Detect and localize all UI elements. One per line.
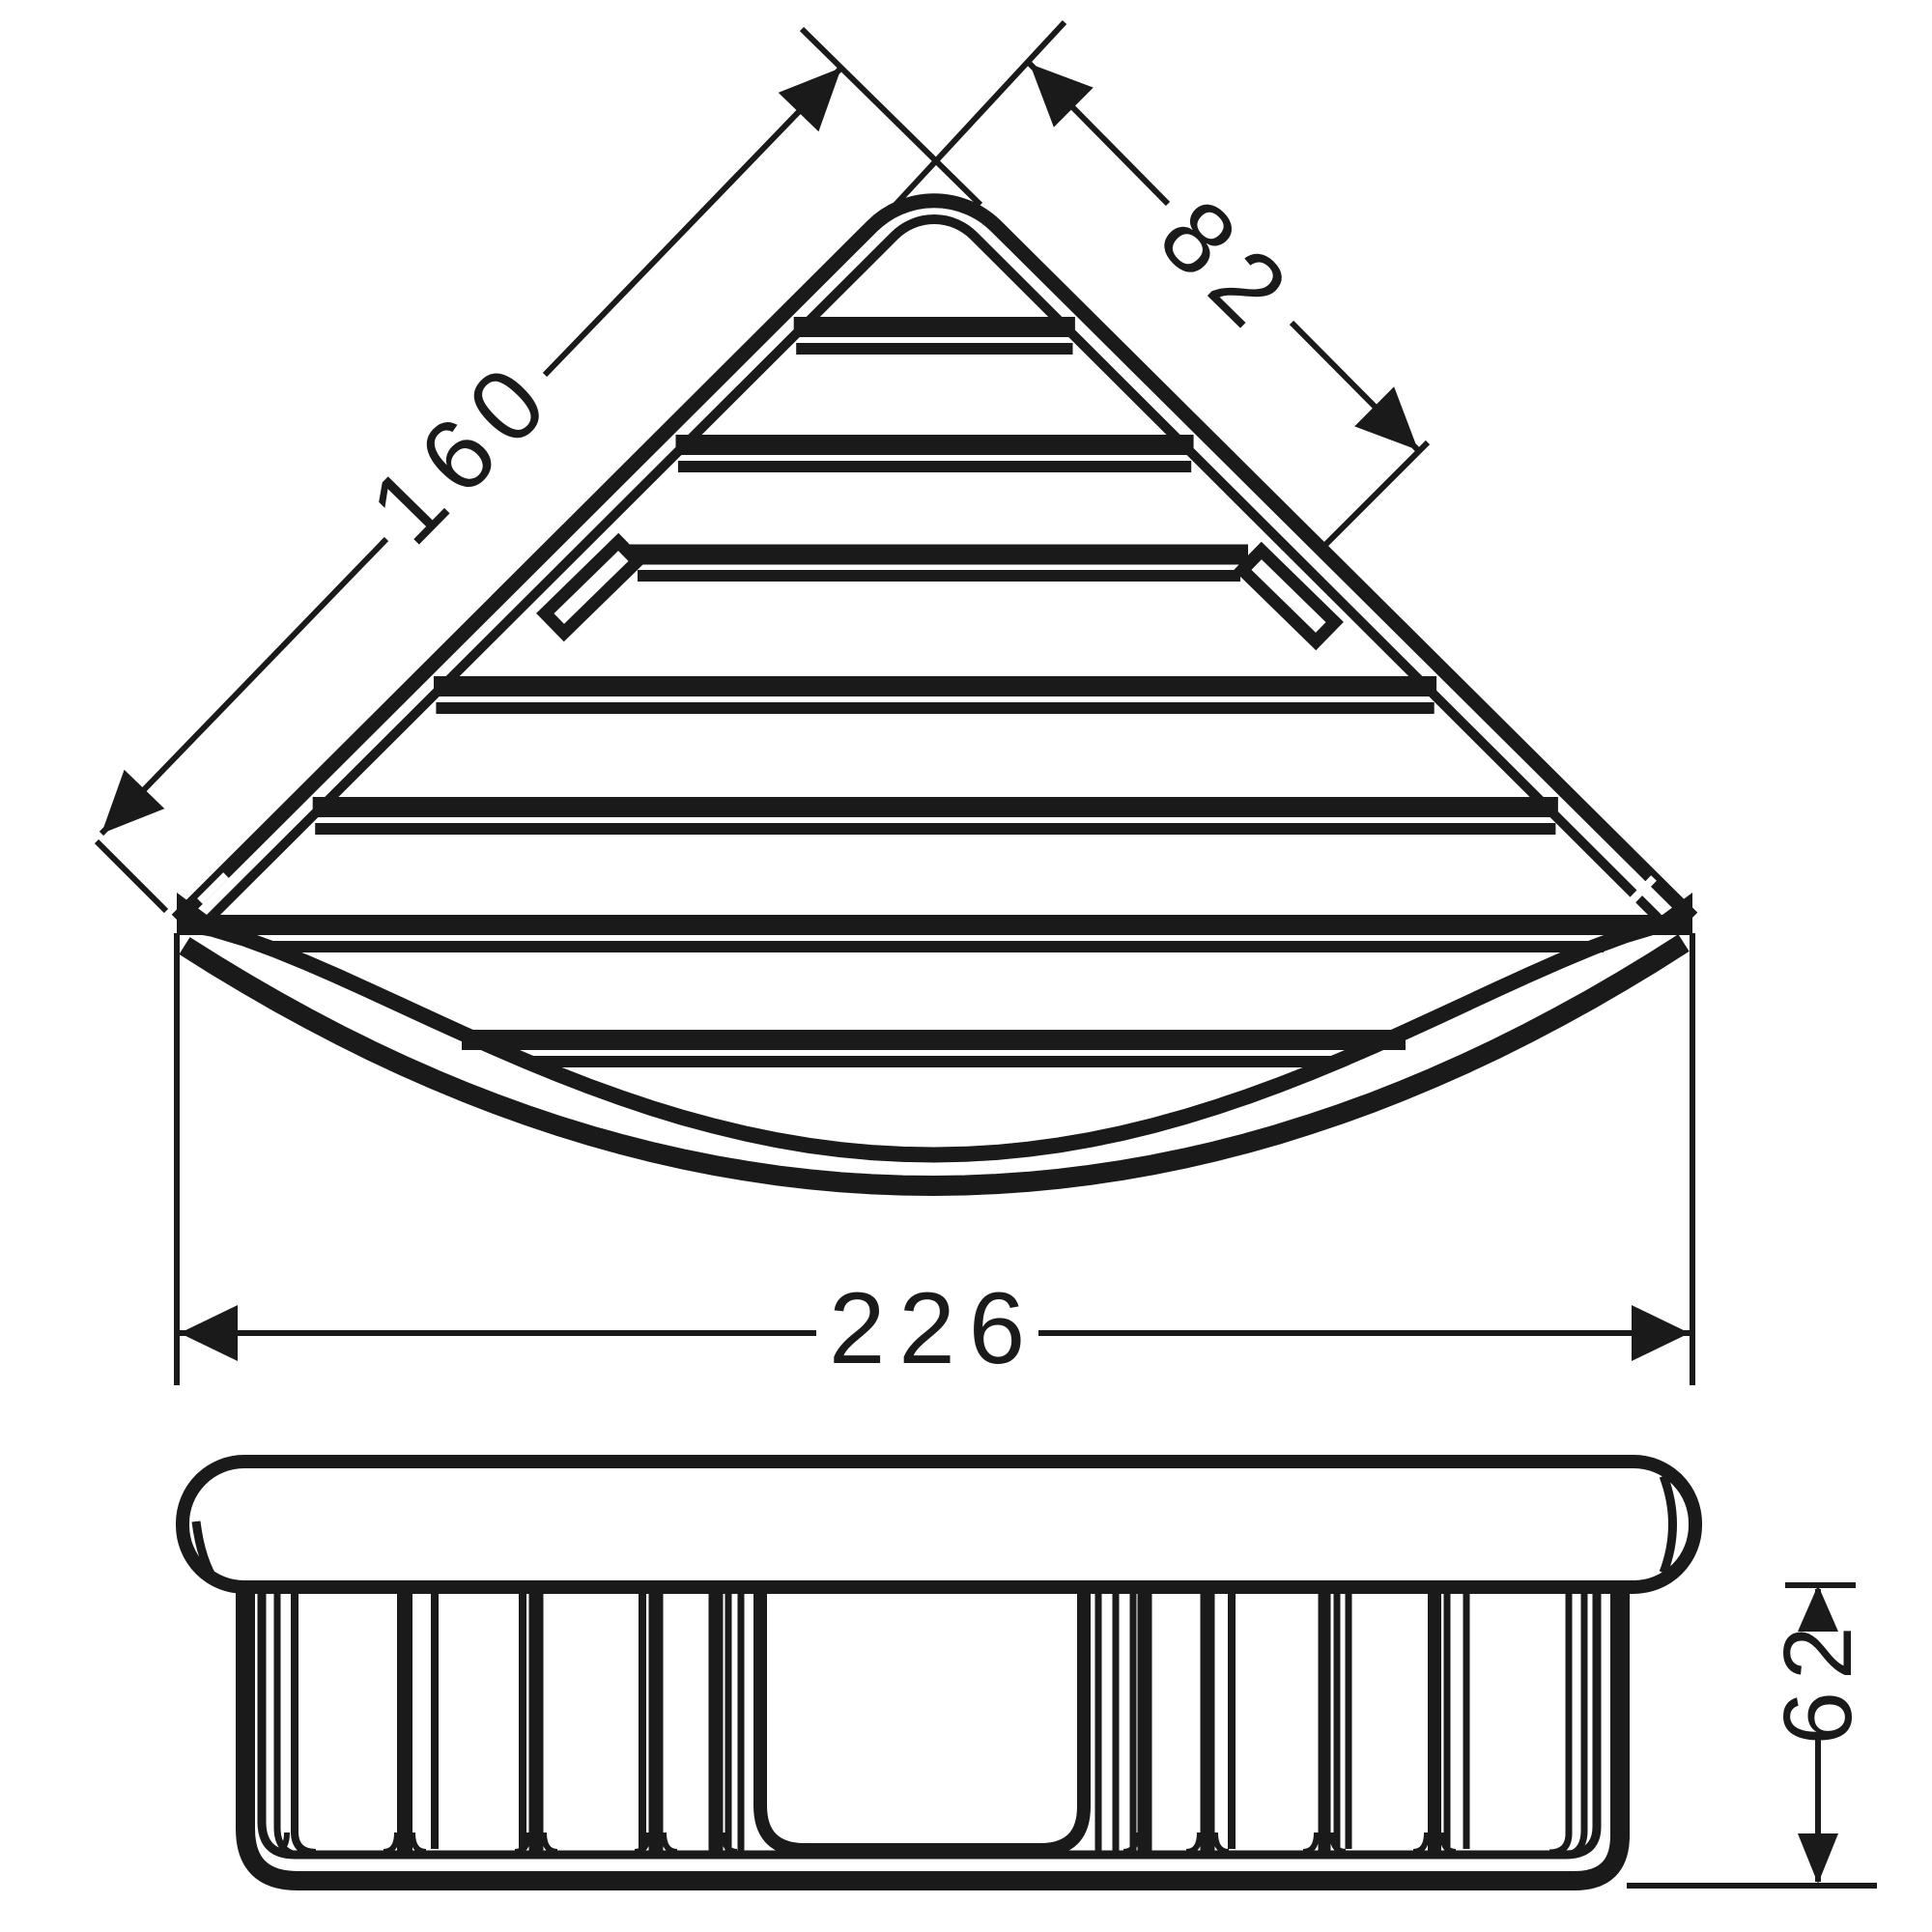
svg-text:226: 226 (829, 1272, 1038, 1385)
svg-text:62: 62 (1764, 1614, 1872, 1745)
